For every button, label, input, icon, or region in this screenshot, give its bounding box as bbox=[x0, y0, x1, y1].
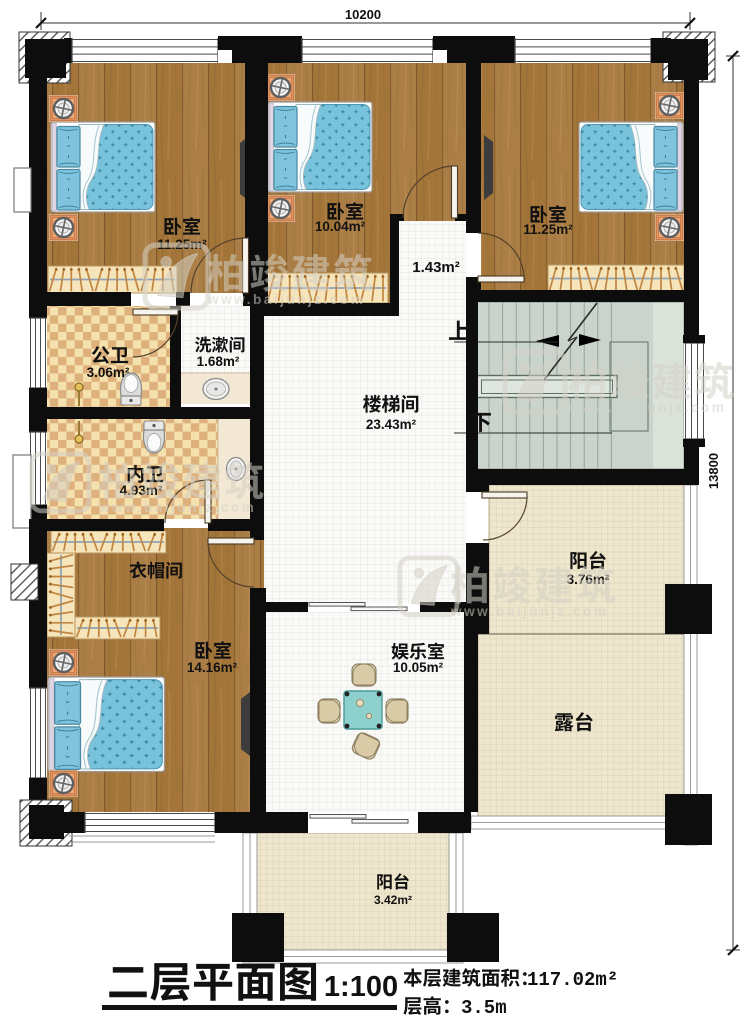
svg-text:10200: 10200 bbox=[345, 7, 381, 22]
svg-text:14.16m²: 14.16m² bbox=[187, 660, 238, 675]
svg-text:www.baijunjz.com: www.baijunjz.com bbox=[568, 400, 726, 415]
svg-text:13800: 13800 bbox=[706, 453, 721, 489]
svg-text:11.25m²: 11.25m² bbox=[523, 222, 573, 237]
svg-text:www.baijunjz.com: www.baijunjz.com bbox=[98, 500, 256, 515]
svg-text:1:100: 1:100 bbox=[324, 971, 398, 1003]
svg-text:117.02m²: 117.02m² bbox=[527, 969, 618, 991]
svg-text:1.43m²: 1.43m² bbox=[412, 259, 460, 276]
svg-text:1.68m²: 1.68m² bbox=[197, 354, 240, 369]
svg-text:3.42m²: 3.42m² bbox=[374, 893, 412, 907]
svg-text:3.06m²: 3.06m² bbox=[87, 365, 130, 380]
svg-text:www.baijunjz.com: www.baijunjz.com bbox=[207, 292, 365, 307]
svg-text:www.baijunjz.com: www.baijunjz.com bbox=[450, 604, 608, 619]
svg-text:23.43m²: 23.43m² bbox=[366, 417, 417, 432]
svg-text:3.5m: 3.5m bbox=[461, 997, 507, 1019]
svg-text:10.04m²: 10.04m² bbox=[315, 219, 366, 234]
svg-text:10.05m²: 10.05m² bbox=[393, 660, 444, 675]
